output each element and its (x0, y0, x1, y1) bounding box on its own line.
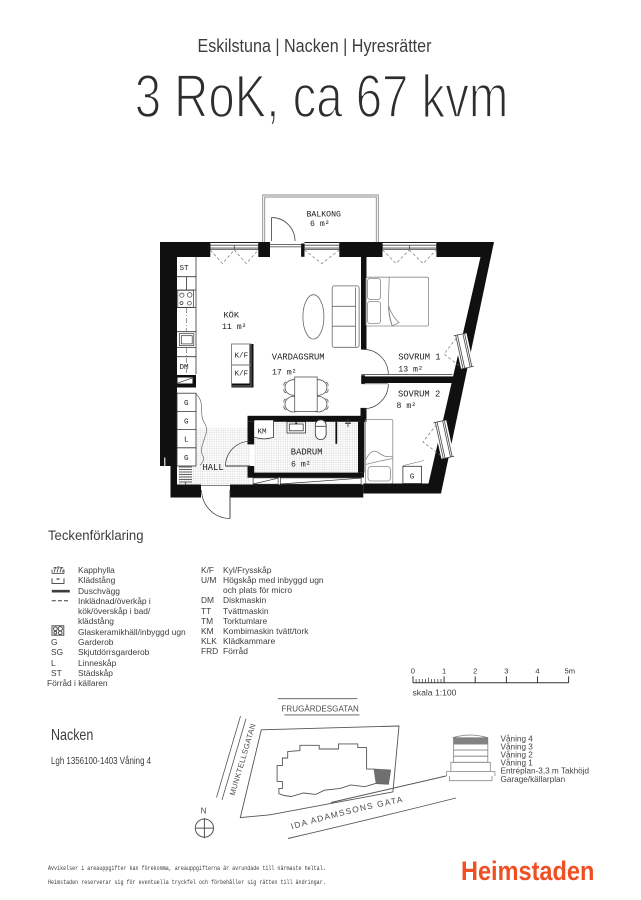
svg-text:8 m²: 8 m² (397, 402, 417, 411)
svg-text:G: G (184, 418, 189, 426)
svg-text:1: 1 (442, 667, 446, 676)
svg-text:BALKONG: BALKONG (307, 211, 341, 220)
svg-text:IDA ADAMSSONS GATA: IDA ADAMSSONS GATA (290, 794, 405, 831)
svg-text:2: 2 (473, 667, 477, 676)
svg-text:G: G (410, 473, 415, 481)
svg-text:DM: DM (180, 364, 190, 372)
svg-text:N: N (201, 806, 207, 816)
svg-text:5m: 5m (565, 667, 576, 676)
svg-text:HALL: HALL (203, 463, 224, 473)
svg-text:0: 0 (411, 667, 415, 676)
svg-text:13 m²: 13 m² (398, 365, 423, 374)
svg-text:11 m²: 11 m² (222, 323, 247, 332)
svg-text:K/F: K/F (235, 371, 249, 379)
svg-text:6 m²: 6 m² (291, 461, 311, 470)
svg-text:ST: ST (180, 265, 190, 273)
svg-text:17 m²: 17 m² (272, 369, 297, 378)
svg-text:G: G (184, 400, 189, 408)
svg-text:SOVRUM 1: SOVRUM 1 (398, 353, 440, 363)
svg-text:VARDAGSRUM: VARDAGSRUM (272, 352, 325, 362)
svg-text:MUNKTELLSGATAN: MUNKTELLSGATAN (228, 722, 258, 796)
svg-text:KÖK: KÖK (224, 310, 240, 321)
svg-text:3: 3 (504, 667, 508, 676)
svg-text:SOVRUM 2: SOVRUM 2 (398, 389, 440, 399)
svg-text:FRUGÄRDESGATAN: FRUGÄRDESGATAN (282, 705, 359, 714)
svg-text:4: 4 (535, 667, 539, 676)
svg-text:K/F: K/F (235, 353, 249, 361)
svg-text:L: L (184, 437, 189, 445)
svg-text:G: G (184, 455, 189, 463)
svg-text:Garage/källarplan: Garage/källarplan (501, 775, 566, 784)
svg-text:6 m²: 6 m² (310, 220, 330, 229)
svg-text:BADRUM: BADRUM (291, 448, 323, 458)
svg-text:KM: KM (258, 428, 268, 436)
svg-text:skala 1:100: skala 1:100 (413, 688, 457, 698)
